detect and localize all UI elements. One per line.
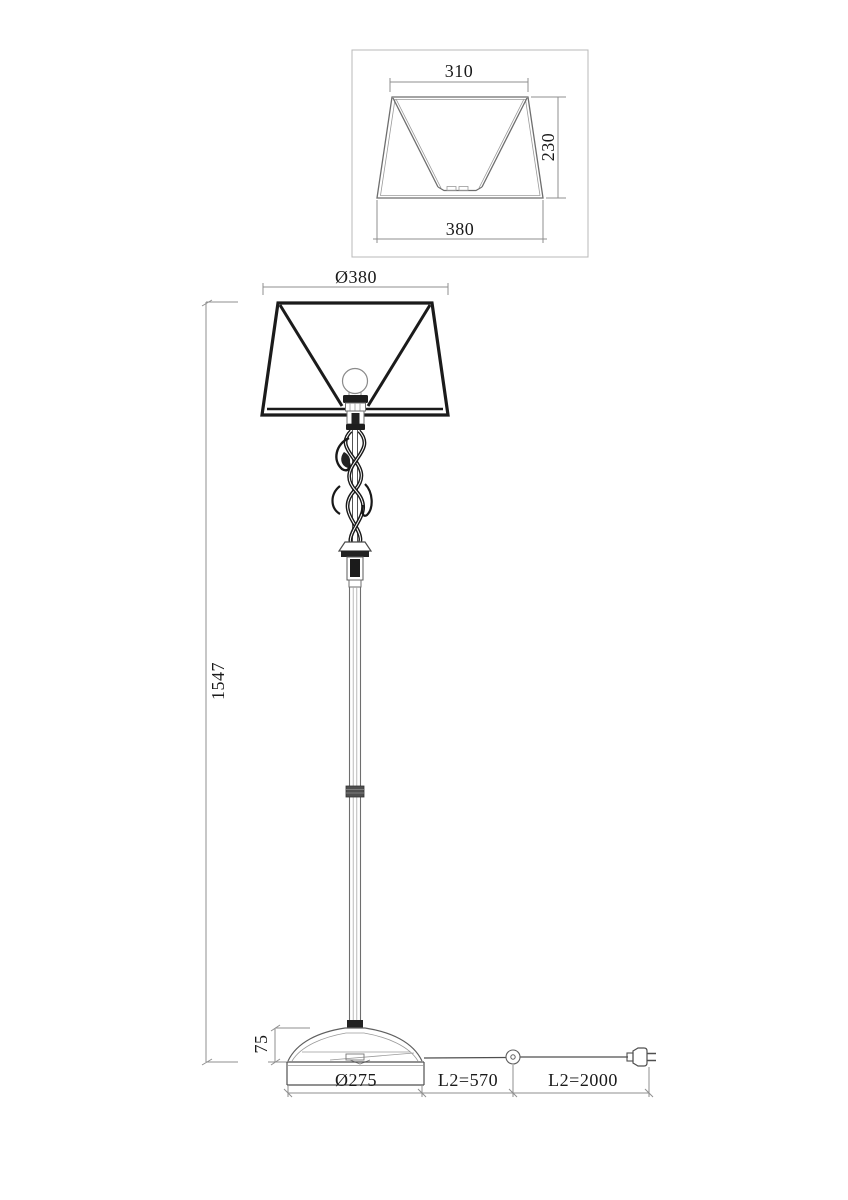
power-plug-icon bbox=[627, 1048, 656, 1066]
light-bulb-icon bbox=[343, 369, 369, 412]
dim-label-base-diameter: Ø275 bbox=[335, 1071, 377, 1089]
stem-coupler bbox=[346, 786, 364, 797]
inline-switch-icon bbox=[506, 1050, 520, 1064]
detail-shade-outline bbox=[377, 97, 543, 198]
dim-label-detail-top-width: 310 bbox=[445, 62, 474, 80]
dim-label-cord-switch-segment: L2=570 bbox=[438, 1071, 498, 1089]
dim-label-shade-diameter: Ø380 bbox=[335, 268, 377, 286]
drawing-linework bbox=[0, 0, 848, 1200]
dim-label-detail-side-height: 230 bbox=[539, 133, 557, 162]
power-cord bbox=[424, 1057, 628, 1058]
dim-label-cord-plug-segment: L2=2000 bbox=[548, 1071, 618, 1089]
twist-base-collar bbox=[339, 542, 371, 587]
stem bbox=[350, 587, 361, 1022]
decorative-twist bbox=[333, 430, 372, 556]
dim-label-base-height: 75 bbox=[252, 1035, 270, 1054]
dim-label-overall-height: 1547 bbox=[209, 662, 227, 700]
technical-drawing-floor-lamp: 310 230 380 Ø380 1547 75 Ø275 L2=570 L2=… bbox=[0, 0, 848, 1200]
dim-label-detail-bottom-width: 380 bbox=[446, 220, 475, 238]
socket-tube bbox=[346, 411, 365, 430]
